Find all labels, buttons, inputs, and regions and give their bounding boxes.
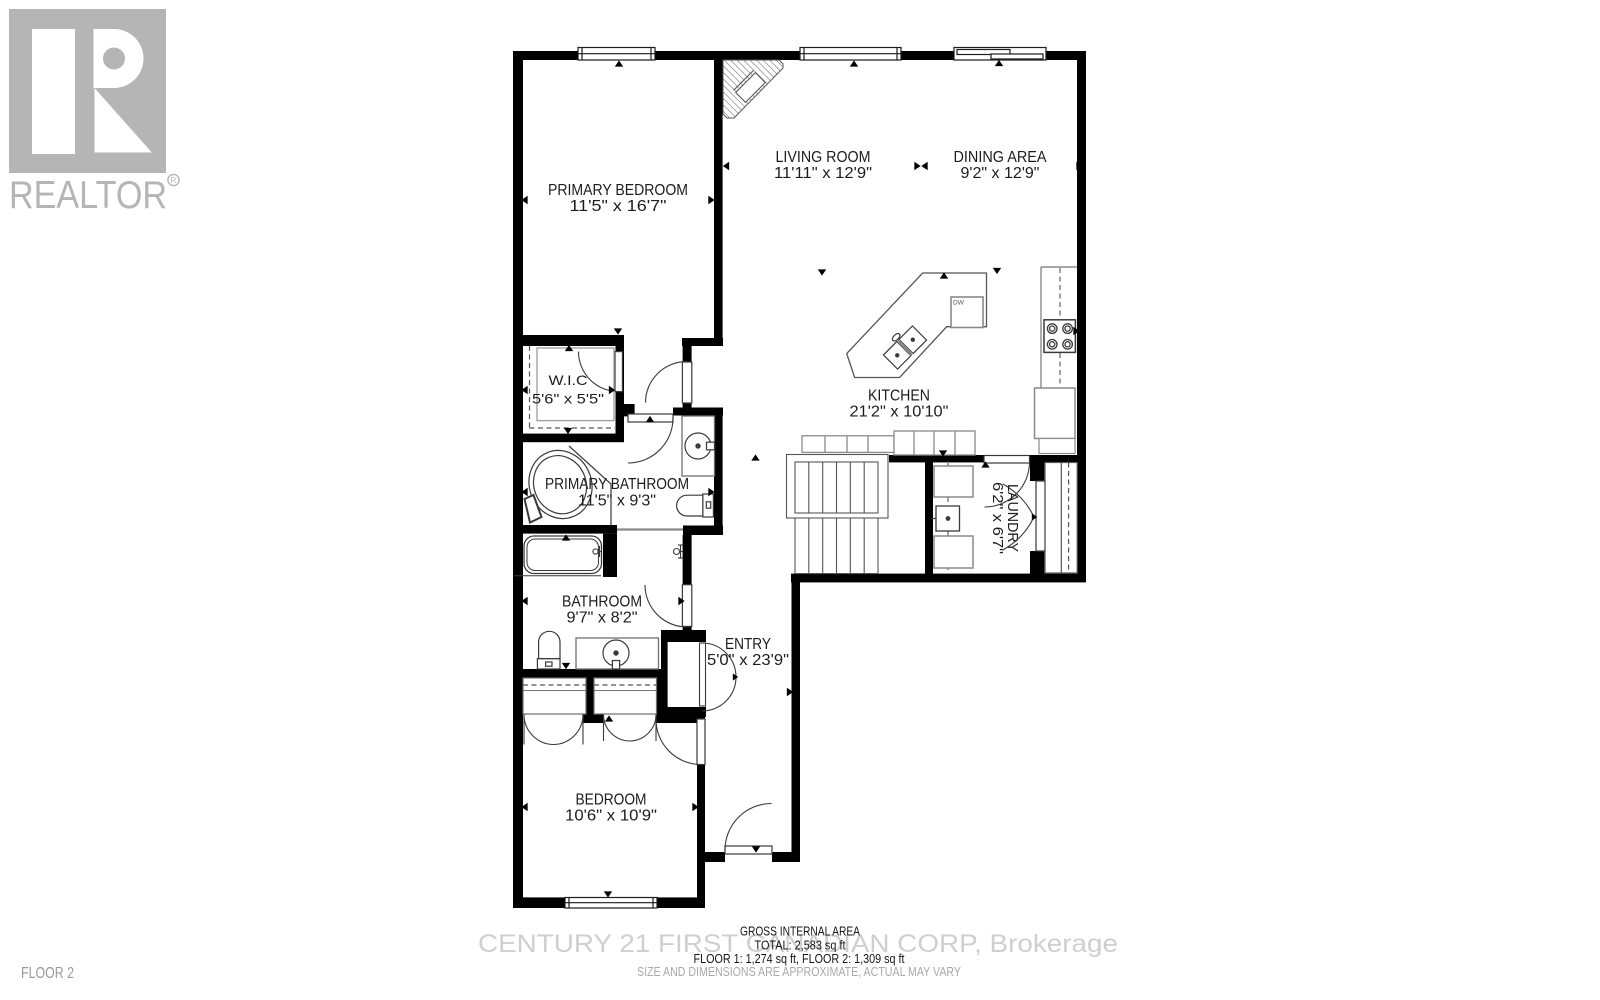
svg-text:BEDROOM: BEDROOM [576,792,647,809]
svg-text:SIZE AND DIMENSIONS ARE APPROX: SIZE AND DIMENSIONS ARE APPROXIMATE, ACT… [637,964,961,979]
svg-text:11'5" x 9'3": 11'5" x 9'3" [578,493,656,510]
svg-text:5'0" x 23'9": 5'0" x 23'9" [707,652,789,669]
svg-text:DW: DW [953,300,965,307]
svg-text:11'11" x 12'9": 11'11" x 12'9" [774,165,872,182]
svg-text:PRIMARY BATHROOM: PRIMARY BATHROOM [545,476,689,493]
svg-text:REALTOR: REALTOR [9,174,167,217]
svg-text:21'2" x 10'10": 21'2" x 10'10" [850,404,949,421]
svg-text:W.I.C: W.I.C [549,372,588,388]
svg-text:6'2" x 6'7": 6'2" x 6'7" [989,482,1005,554]
svg-text:BATHROOM: BATHROOM [562,594,642,611]
svg-text:LIVING ROOM: LIVING ROOM [776,149,871,166]
svg-text:ENTRY: ENTRY [725,636,771,653]
svg-text:9'2" x 12'9": 9'2" x 12'9" [961,165,1040,182]
svg-text:DINING AREA: DINING AREA [954,149,1048,166]
svg-text:R: R [171,176,177,185]
svg-text:10'6" x 10'9": 10'6" x 10'9" [565,808,657,825]
svg-text:GROSS INTERNAL AREA: GROSS INTERNAL AREA [740,924,860,939]
svg-text:9'7" x 8'2": 9'7" x 8'2" [567,610,638,627]
svg-text:KITCHEN: KITCHEN [868,388,930,405]
svg-text:PRIMARY BEDROOM: PRIMARY BEDROOM [548,182,688,199]
svg-text:5'6" x 5'5": 5'6" x 5'5" [532,391,604,407]
svg-text:11'5" x 16'7": 11'5" x 16'7" [570,198,667,215]
svg-text:LAUNDRY: LAUNDRY [1004,484,1020,552]
svg-text:FLOOR 2: FLOOR 2 [21,965,74,982]
